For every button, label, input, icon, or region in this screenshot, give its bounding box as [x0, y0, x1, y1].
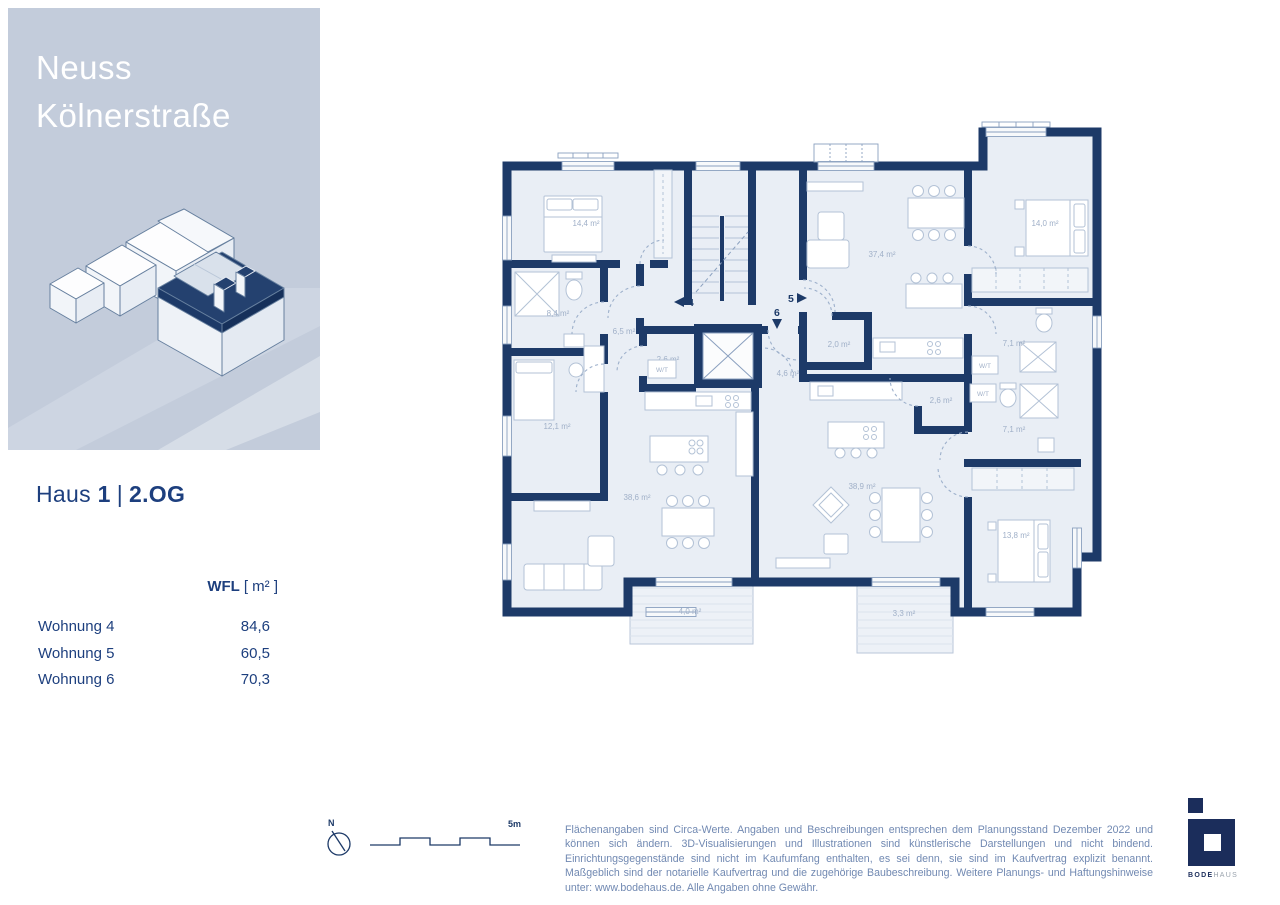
page-title: Haus 1|2.OG	[36, 481, 185, 508]
room-label: 6,5 m²	[613, 327, 636, 336]
floor-plan-svg: 14,4 m² 8,4 m² 6,5 m² 2,6 m² 4,6 m² 37,4…	[500, 120, 1120, 665]
room-label: 2,0 m²	[828, 340, 851, 349]
project-title-line1: Neuss	[36, 49, 132, 86]
room-label: 13,8 m²	[1002, 531, 1029, 540]
apartment-table: WFL [ m² ] Wohnung 4 84,6 Wohnung 5 60,5…	[38, 578, 278, 699]
apt6-marker: 6	[774, 307, 780, 319]
logo-inner-square	[1204, 834, 1221, 851]
apartment-area: 60,5	[180, 646, 278, 661]
project-title-line2: Kölnerstraße	[36, 97, 231, 134]
table-row: Wohnung 6 70,3	[38, 672, 278, 687]
room-label: 8,4 m²	[547, 309, 570, 318]
wfl-header: WFL	[207, 578, 239, 595]
project-panel: Neuss Kölnerstraße	[8, 8, 320, 450]
wfl-unit: [ m² ]	[244, 578, 278, 595]
compass-north-label: N	[328, 818, 335, 828]
table-row: Wohnung 5 60,5	[38, 646, 278, 661]
room-label: 7,1 m²	[1003, 339, 1026, 348]
logo-text-bold: BODE	[1188, 872, 1213, 879]
room-label: 4,6 m²	[777, 369, 800, 378]
apartment-area: 84,6	[180, 619, 278, 634]
bodehaus-logo: BODEHAUS	[1186, 796, 1246, 876]
haus-word: Haus	[36, 481, 91, 507]
compass-icon	[328, 831, 350, 855]
apartment-label: Wohnung 5	[38, 646, 114, 661]
apartment-label: Wohnung 6	[38, 672, 114, 687]
room-label: 4,0 m²	[679, 607, 702, 616]
wt-label: W/T	[979, 363, 991, 370]
building-3d-svg	[8, 176, 320, 450]
building-3d-illustration	[8, 176, 320, 450]
logo-wordmark: BODEHAUS	[1188, 872, 1238, 879]
wt-label: W/T	[977, 391, 989, 398]
apt5-marker: 5	[788, 293, 794, 305]
disclaimer-text: Flächenangaben sind Circa-Werte. Angaben…	[565, 823, 1153, 896]
room-label: 37,4 m²	[868, 250, 895, 259]
table-row: Wohnung 4 84,6	[38, 619, 278, 634]
room-label: 14,4 m²	[572, 219, 599, 228]
logo-big-square-icon	[1188, 819, 1235, 866]
room-label: 7,1 m²	[1003, 425, 1026, 434]
apt4-marker: 4	[688, 297, 694, 309]
compass-scale-svg: N 5m	[318, 813, 533, 865]
apartment-area: 70,3	[180, 672, 278, 687]
room-label: 14,0 m²	[1031, 219, 1058, 228]
room-label: 2,6 m²	[930, 396, 953, 405]
project-title: Neuss Kölnerstraße	[36, 44, 231, 140]
room-label: 38,9 m²	[848, 482, 875, 491]
apartment-label: Wohnung 4	[38, 619, 114, 634]
logo-text-light: HAUS	[1213, 872, 1238, 879]
floor-plan: 14,4 m² 8,4 m² 6,5 m² 2,6 m² 4,6 m² 37,4…	[500, 120, 1120, 665]
floor-label: 2.OG	[129, 481, 185, 507]
room-label: 38,6 m²	[623, 493, 650, 502]
room-label: 3,3 m²	[893, 609, 916, 618]
title-separator: |	[111, 481, 129, 507]
compass-and-scale: N 5m	[318, 813, 533, 865]
wt-label: W/T	[656, 367, 668, 374]
haus-number: 1	[98, 481, 111, 507]
logo-small-square-icon	[1188, 798, 1203, 813]
table-header: WFL [ m² ]	[38, 578, 278, 595]
room-label: 12,1 m²	[543, 422, 570, 431]
elevator	[694, 324, 762, 388]
scale-label: 5m	[508, 819, 521, 829]
scale-bar	[370, 838, 520, 845]
